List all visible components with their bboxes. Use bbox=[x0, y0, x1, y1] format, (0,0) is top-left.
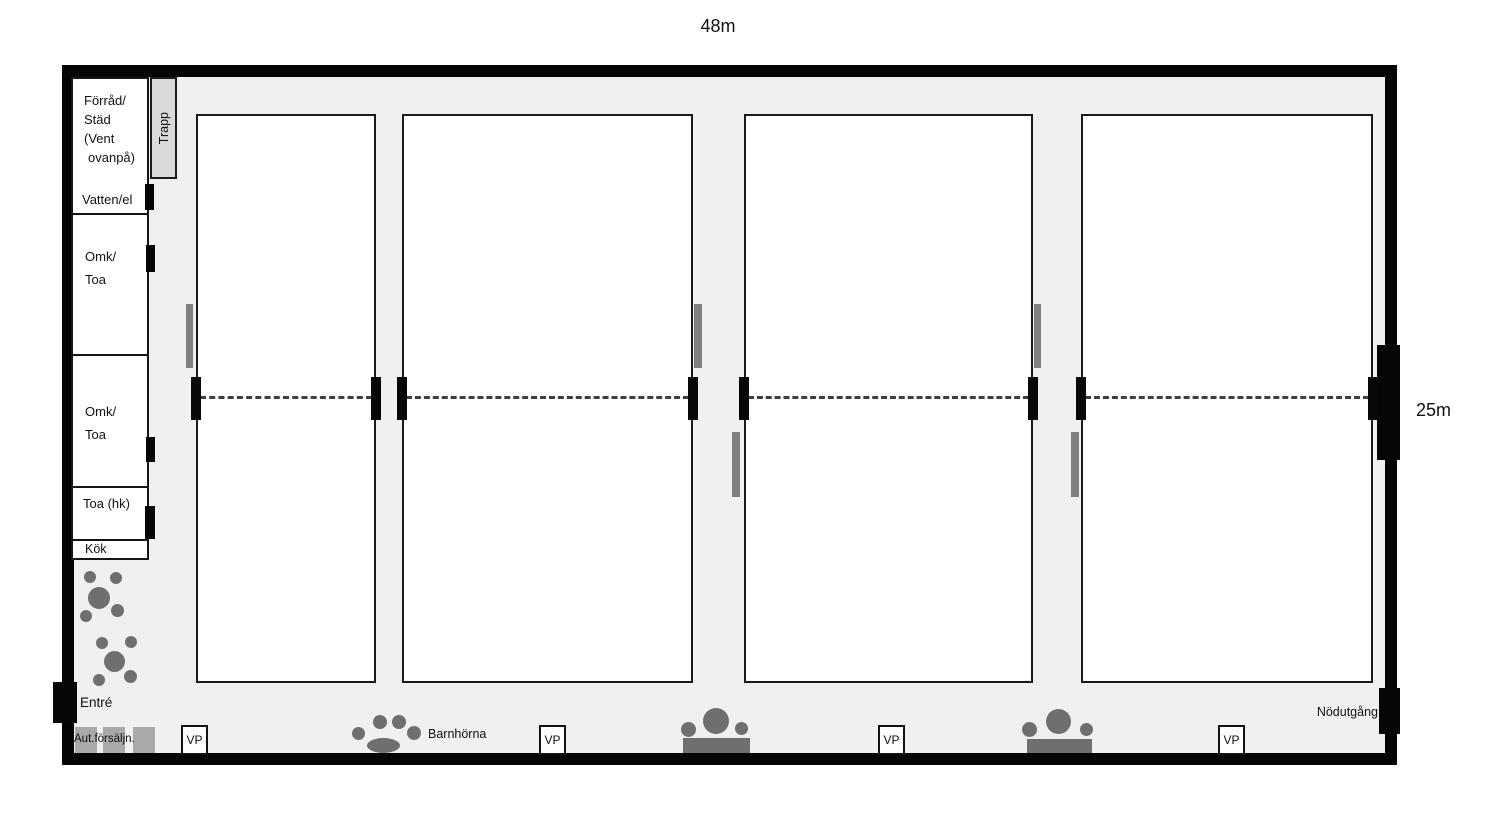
kids-corner-seat bbox=[352, 727, 365, 740]
spectator-seat bbox=[1046, 709, 1071, 734]
net-post bbox=[739, 377, 749, 420]
spectator-bench bbox=[1027, 739, 1092, 753]
net-line-court-1 bbox=[200, 396, 372, 399]
room-changing-1-label: Omk/ bbox=[85, 245, 147, 268]
room-storage: Förråd/ Städ (Vent ovanpå) Vatten/el bbox=[71, 77, 149, 215]
room-kitchen-label: Kök bbox=[73, 541, 147, 557]
cafe-chair bbox=[124, 670, 137, 683]
cafe-chair bbox=[80, 610, 92, 622]
kids-corner-label: Barnhörna bbox=[428, 727, 486, 741]
side-exit-door bbox=[1377, 345, 1400, 460]
net-post bbox=[397, 377, 407, 420]
spectator-seat bbox=[1080, 723, 1093, 736]
cafe-chair bbox=[110, 572, 122, 584]
room-water-electric-label: Vatten/el bbox=[82, 190, 132, 209]
room-changing-2-label: Omk/ bbox=[85, 400, 147, 423]
door-water-electric bbox=[145, 184, 154, 210]
spectator-seat bbox=[735, 722, 748, 735]
room-changing-1: Omk/ Toa bbox=[71, 213, 149, 356]
entrance-door bbox=[53, 682, 77, 723]
door-toilet-accessible bbox=[145, 506, 155, 539]
floor-plan: 48m 25m Förråd/ Städ (Vent ovanpå) Vatte… bbox=[0, 0, 1486, 836]
net-post bbox=[1028, 377, 1038, 420]
kids-corner-seat bbox=[407, 726, 421, 740]
cafe-table bbox=[104, 651, 125, 672]
room-toilet-accessible: Toa (hk) bbox=[71, 486, 149, 541]
kids-corner-rug bbox=[367, 738, 400, 753]
net-line-court-3 bbox=[748, 396, 1029, 399]
cafe-table bbox=[88, 587, 110, 609]
room-storage-label: Förråd/ bbox=[84, 91, 147, 110]
kids-corner-seat bbox=[373, 715, 387, 729]
height-dimension-label: 25m bbox=[1416, 400, 1451, 421]
net-post bbox=[191, 377, 201, 420]
emergency-exit-label: Nödutgång bbox=[1300, 705, 1378, 719]
vp-box-1: VP bbox=[181, 725, 208, 755]
cafe-chair bbox=[93, 674, 105, 686]
room-toilet-accessible-label: Toa (hk) bbox=[73, 488, 147, 513]
spectator-bench bbox=[683, 738, 750, 753]
cafe-chair bbox=[125, 636, 137, 648]
bench bbox=[732, 432, 740, 497]
cafe-chair bbox=[84, 571, 96, 583]
door-changing-1 bbox=[146, 245, 155, 272]
cafe-chair bbox=[111, 604, 124, 617]
stairs-label: Trapp bbox=[157, 112, 171, 144]
width-dimension-label: 48m bbox=[680, 16, 756, 37]
spectator-seat bbox=[703, 708, 729, 734]
net-post bbox=[1076, 377, 1086, 420]
bench bbox=[186, 304, 193, 368]
vp-box-2: VP bbox=[539, 725, 566, 755]
kids-corner-seat bbox=[392, 715, 406, 729]
emergency-exit-door bbox=[1379, 688, 1400, 734]
cafe-chair bbox=[96, 637, 108, 649]
net-post bbox=[688, 377, 698, 420]
entrance-label: Entré bbox=[80, 695, 112, 710]
net-post bbox=[371, 377, 381, 420]
net-line-court-4 bbox=[1085, 396, 1369, 399]
room-changing-2: Omk/ Toa bbox=[71, 354, 149, 488]
bench bbox=[694, 304, 702, 368]
vp-box-3: VP bbox=[878, 725, 905, 755]
net-line-court-2 bbox=[406, 396, 689, 399]
spectator-seat bbox=[1022, 722, 1037, 737]
vp-box-4: VP bbox=[1218, 725, 1245, 755]
bench bbox=[1071, 432, 1079, 497]
room-kitchen: Kök bbox=[71, 539, 149, 560]
stairs-box: Trapp bbox=[150, 77, 177, 179]
bench bbox=[1034, 304, 1041, 368]
vending-machine bbox=[133, 727, 155, 753]
vending-machines-label: Aut.försäljn. bbox=[74, 733, 135, 745]
spectator-seat bbox=[681, 722, 696, 737]
door-changing-2 bbox=[146, 437, 155, 462]
